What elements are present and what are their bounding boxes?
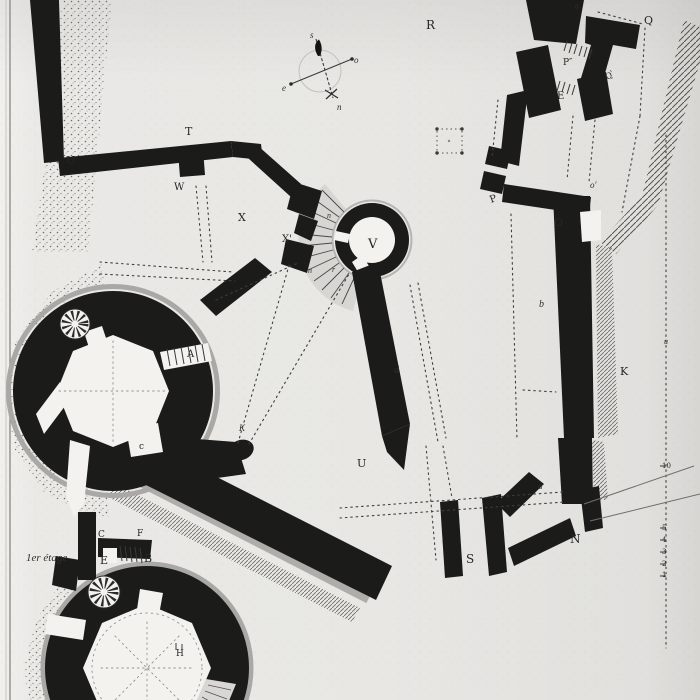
plan-label: U: [357, 457, 366, 470]
plan-label: W: [174, 182, 185, 193]
plan-label: b: [539, 299, 544, 310]
plan-label: B: [144, 552, 152, 565]
plan-label: K: [238, 423, 246, 433]
plan-label: n: [327, 211, 331, 220]
plan-label: E: [100, 554, 108, 567]
plan-label: 1er étage: [26, 552, 67, 564]
scanned-plate: UTWXX'VRsoenQaQ'P″Eo'PObduKAcKUSNaH1er é…: [0, 0, 700, 700]
plan-label: T: [185, 125, 193, 138]
plan-label: C: [98, 530, 105, 540]
plan-label: O: [554, 216, 563, 229]
plan-label: P″: [563, 58, 573, 68]
plan-label: s: [310, 30, 314, 40]
plan-label: S: [466, 552, 474, 566]
plan-label: 2: [662, 560, 666, 568]
plan-label: A: [186, 349, 195, 360]
donjon-south-niche: [126, 423, 163, 457]
plan-label: u: [664, 337, 668, 346]
plan-label: n: [308, 266, 312, 275]
plan-label: X: [238, 211, 246, 224]
spiral-stair-lower: [88, 576, 120, 608]
plan-label: Q: [644, 14, 653, 27]
plan-label: 3: [662, 548, 666, 556]
plan-label: N: [570, 532, 581, 546]
plan-label: a: [538, 481, 543, 491]
plan-label: R: [426, 18, 436, 32]
plan-label: H: [176, 649, 184, 659]
plan-label: V: [367, 237, 378, 252]
plan-label: c: [139, 442, 144, 452]
plan-label: o': [590, 180, 598, 190]
plan-label: 1: [662, 571, 666, 579]
east-wall-notch: [580, 210, 601, 242]
plan-label: e: [282, 83, 286, 93]
castle-plan-engraving: UTWXX'VRsoenQaQ'P″Eo'PObduKAcKUSNaH1er é…: [0, 0, 700, 700]
plan-label: K: [620, 365, 629, 378]
plan-label: E: [557, 91, 564, 102]
plan-label: U: [66, 154, 75, 167]
plan-label: F: [137, 529, 143, 539]
plan-label: 5: [662, 524, 666, 532]
spiral-stair-donjon: [60, 309, 90, 339]
plan-label: X': [282, 234, 292, 245]
plan-label: o: [354, 55, 359, 65]
plan-label: 4: [662, 536, 667, 544]
plan-label: 10: [662, 462, 671, 470]
plan-label: n: [337, 102, 342, 112]
